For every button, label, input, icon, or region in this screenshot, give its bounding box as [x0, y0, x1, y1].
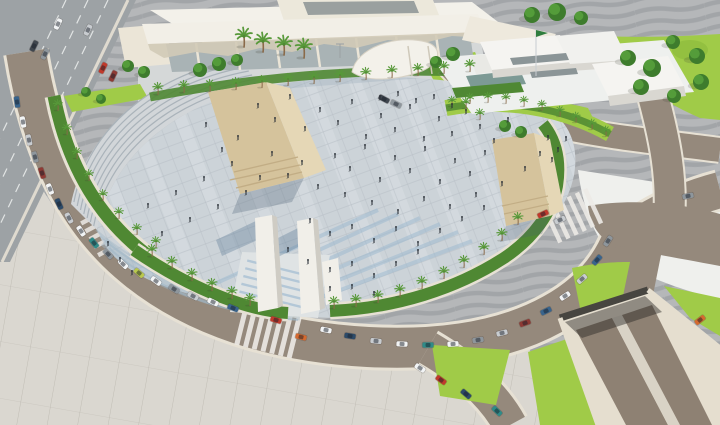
car	[447, 340, 460, 347]
car	[369, 337, 382, 345]
scene-svg	[0, 0, 720, 425]
architectural-rendering	[0, 0, 720, 425]
car	[422, 342, 434, 348]
car	[396, 340, 409, 347]
skylight	[303, 1, 419, 15]
